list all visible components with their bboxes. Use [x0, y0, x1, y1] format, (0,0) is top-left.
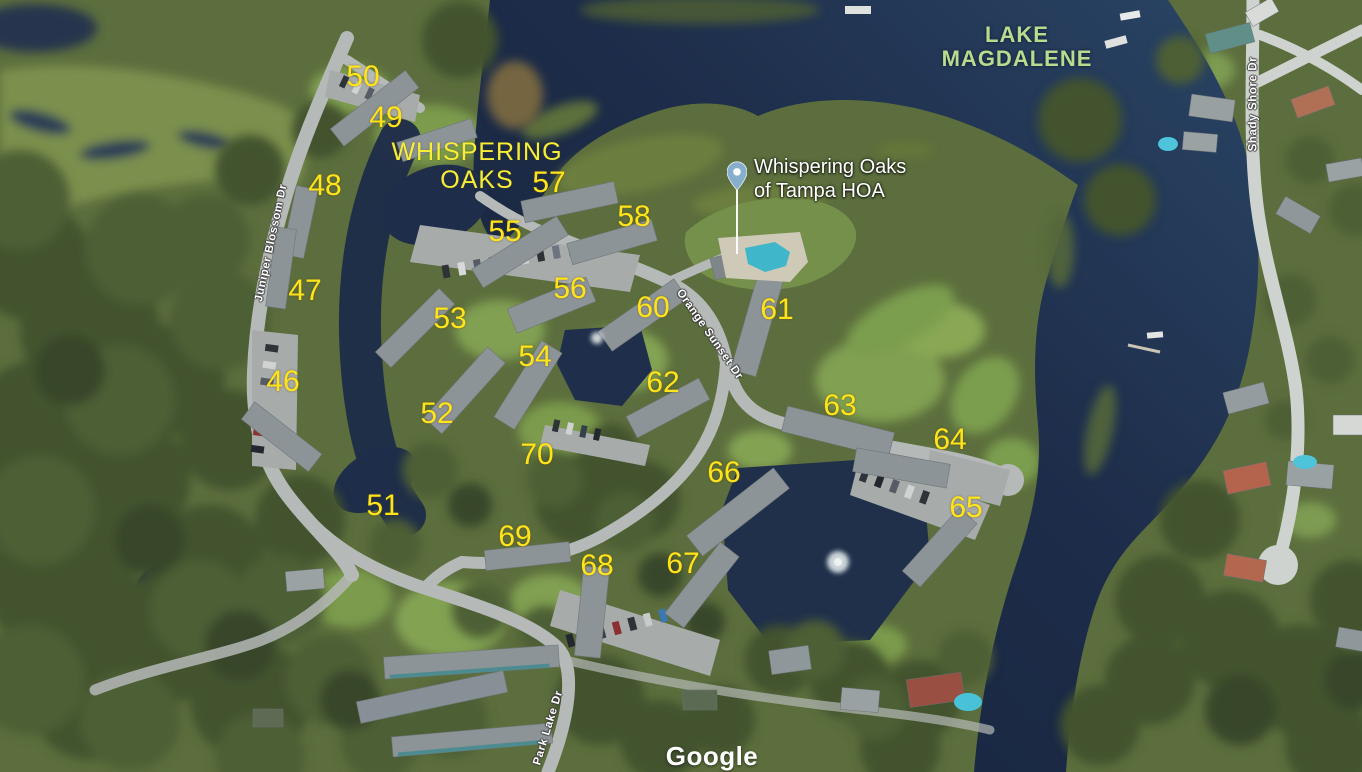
place-pin[interactable] [727, 161, 747, 191]
place-pin-label-line2[interactable]: of Tampa HOA [754, 179, 906, 203]
satellite-imagery [0, 0, 1362, 772]
map-viewport[interactable]: LAKE MAGDALENE WHISPERING OAKS Whisperin… [0, 0, 1362, 772]
place-pin-label[interactable]: Whispering Oaks of Tampa HOA [754, 155, 906, 203]
map-pin-icon[interactable] [727, 161, 747, 191]
place-pin-label-line1[interactable]: Whispering Oaks [754, 155, 906, 179]
